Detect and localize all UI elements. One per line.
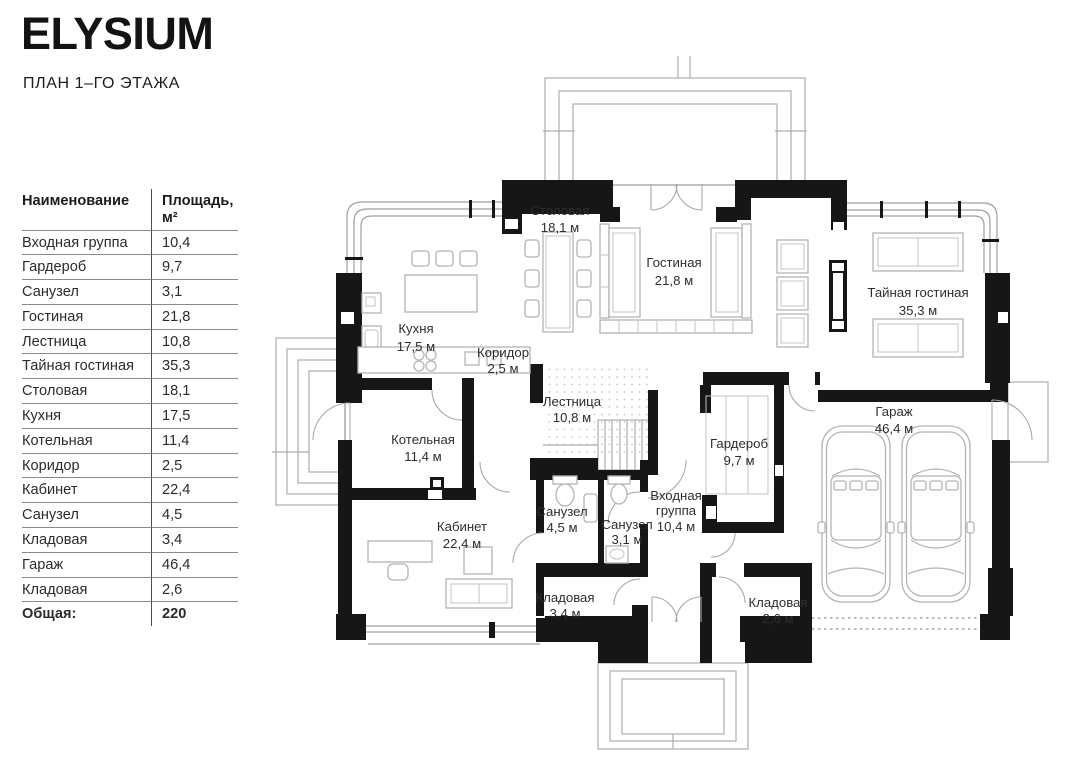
dining-table xyxy=(543,232,573,332)
desk-chair xyxy=(388,564,408,580)
svg-text:10,8 м: 10,8 м xyxy=(553,410,591,425)
svg-text:2,6 м: 2,6 м xyxy=(762,611,793,626)
svg-text:17,5 м: 17,5 м xyxy=(397,339,435,354)
svg-text:11,4 м: 11,4 м xyxy=(404,449,441,464)
svg-text:3,4 м: 3,4 м xyxy=(549,606,580,621)
room-label-garage: Гараж xyxy=(875,404,912,419)
floor-plan-poster: ELYSIUM ПЛАН 1–ГО ЭТАЖА Наименование Пло… xyxy=(0,0,1072,768)
svg-text:10,4 м: 10,4 м xyxy=(657,519,695,534)
floor-plan-drawing: Столовая 18,1 м Гостиная 21,8 м Тайная г… xyxy=(0,0,1072,768)
room-label-wardrobe: Гардероб xyxy=(710,436,768,451)
toilet xyxy=(608,476,630,484)
room-label-boiler: Котельная xyxy=(391,432,455,447)
car xyxy=(898,426,974,602)
svg-text:группа: группа xyxy=(656,503,697,518)
room-label-stairs: Лестница xyxy=(543,394,602,409)
svg-text:3,1 м: 3,1 м xyxy=(611,532,642,547)
room-label-entry: Входная xyxy=(650,488,702,503)
garage-cars xyxy=(818,426,974,602)
svg-text:21,8 м: 21,8 м xyxy=(655,273,693,288)
kitchen-island xyxy=(405,275,477,312)
svg-text:2,5 м: 2,5 м xyxy=(487,361,518,376)
svg-text:18,1 м: 18,1 м xyxy=(541,220,579,235)
room-label-storage-1: Кладовая xyxy=(535,590,594,605)
car xyxy=(818,426,894,602)
svg-text:22,4 м: 22,4 м xyxy=(443,536,481,551)
room-label-storage-2: Кладовая xyxy=(748,595,807,610)
terraces xyxy=(272,56,1048,749)
svg-text:35,3 м: 35,3 м xyxy=(899,303,937,318)
room-label-bath-2: Санузел xyxy=(601,517,652,532)
svg-text:46,4 м: 46,4 м xyxy=(875,421,913,436)
fridge xyxy=(362,293,381,313)
room-label-bath-1: Санузел xyxy=(536,504,587,519)
desk xyxy=(368,541,432,562)
svg-text:9,7 м: 9,7 м xyxy=(723,453,754,468)
svg-text:4,5 м: 4,5 м xyxy=(546,520,577,535)
room-label-kitchen: Кухня xyxy=(398,321,433,336)
room-label-corridor: Коридор xyxy=(477,345,529,360)
room-label-dining: Столовая xyxy=(531,203,590,218)
room-label-secret-living: Тайная гостиная xyxy=(867,285,968,300)
room-label-living: Гостиная xyxy=(646,255,701,270)
room-label-office: Кабинет xyxy=(437,519,487,534)
toilet xyxy=(553,476,577,484)
